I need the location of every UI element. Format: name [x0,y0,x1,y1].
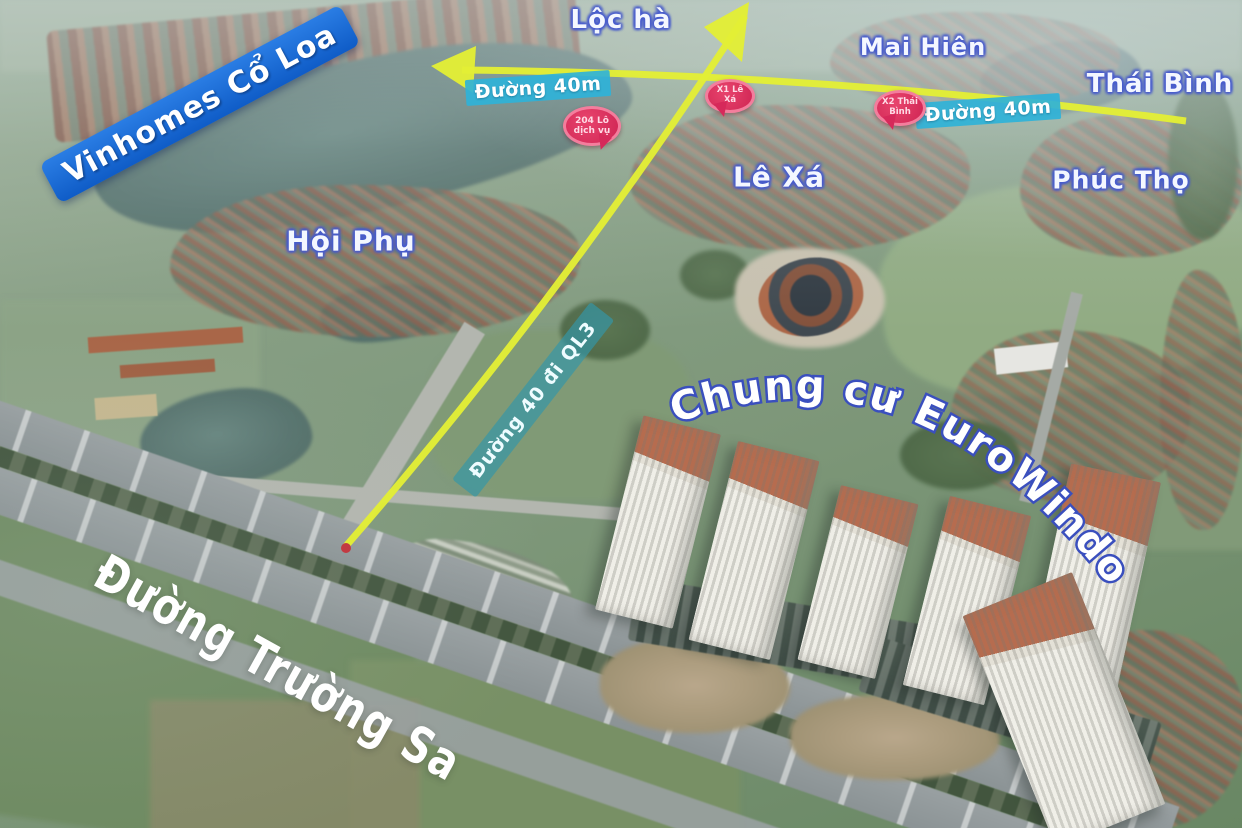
pin-204-lo-dich-vu: 204 Lô dịch vụ [563,106,621,146]
tree-cluster [1168,80,1238,240]
pin-label-line: Bình [889,108,911,118]
place-label-hoi-phu: Hội Phụ [286,225,415,258]
place-label-loc-ha: Lộc hà [571,5,672,35]
pin-label-line: 204 Lô [575,116,609,126]
pagoda-building [94,394,157,420]
pin-x2-thai-binh: X2 Thái Bình [874,90,926,126]
pin-x1-le-xa: X1 Lê Xá [705,79,755,113]
place-label-phuc-tho: Phúc Thọ [1052,166,1189,195]
place-label-mai-hien: Mai Hiên [860,33,986,61]
place-label-le-xa: Lê Xá [733,161,825,194]
tree-cluster [900,420,1020,490]
place-label-thai-binh: Thái Bình [1087,69,1234,99]
pin-label-line: Xá [724,96,736,106]
village-hoi-phu [170,185,580,337]
aerial-map: Chung cư EuroWindow Lộc hà Mai Hiên Thái… [0,0,1242,828]
pin-label-line: dịch vụ [574,126,611,136]
